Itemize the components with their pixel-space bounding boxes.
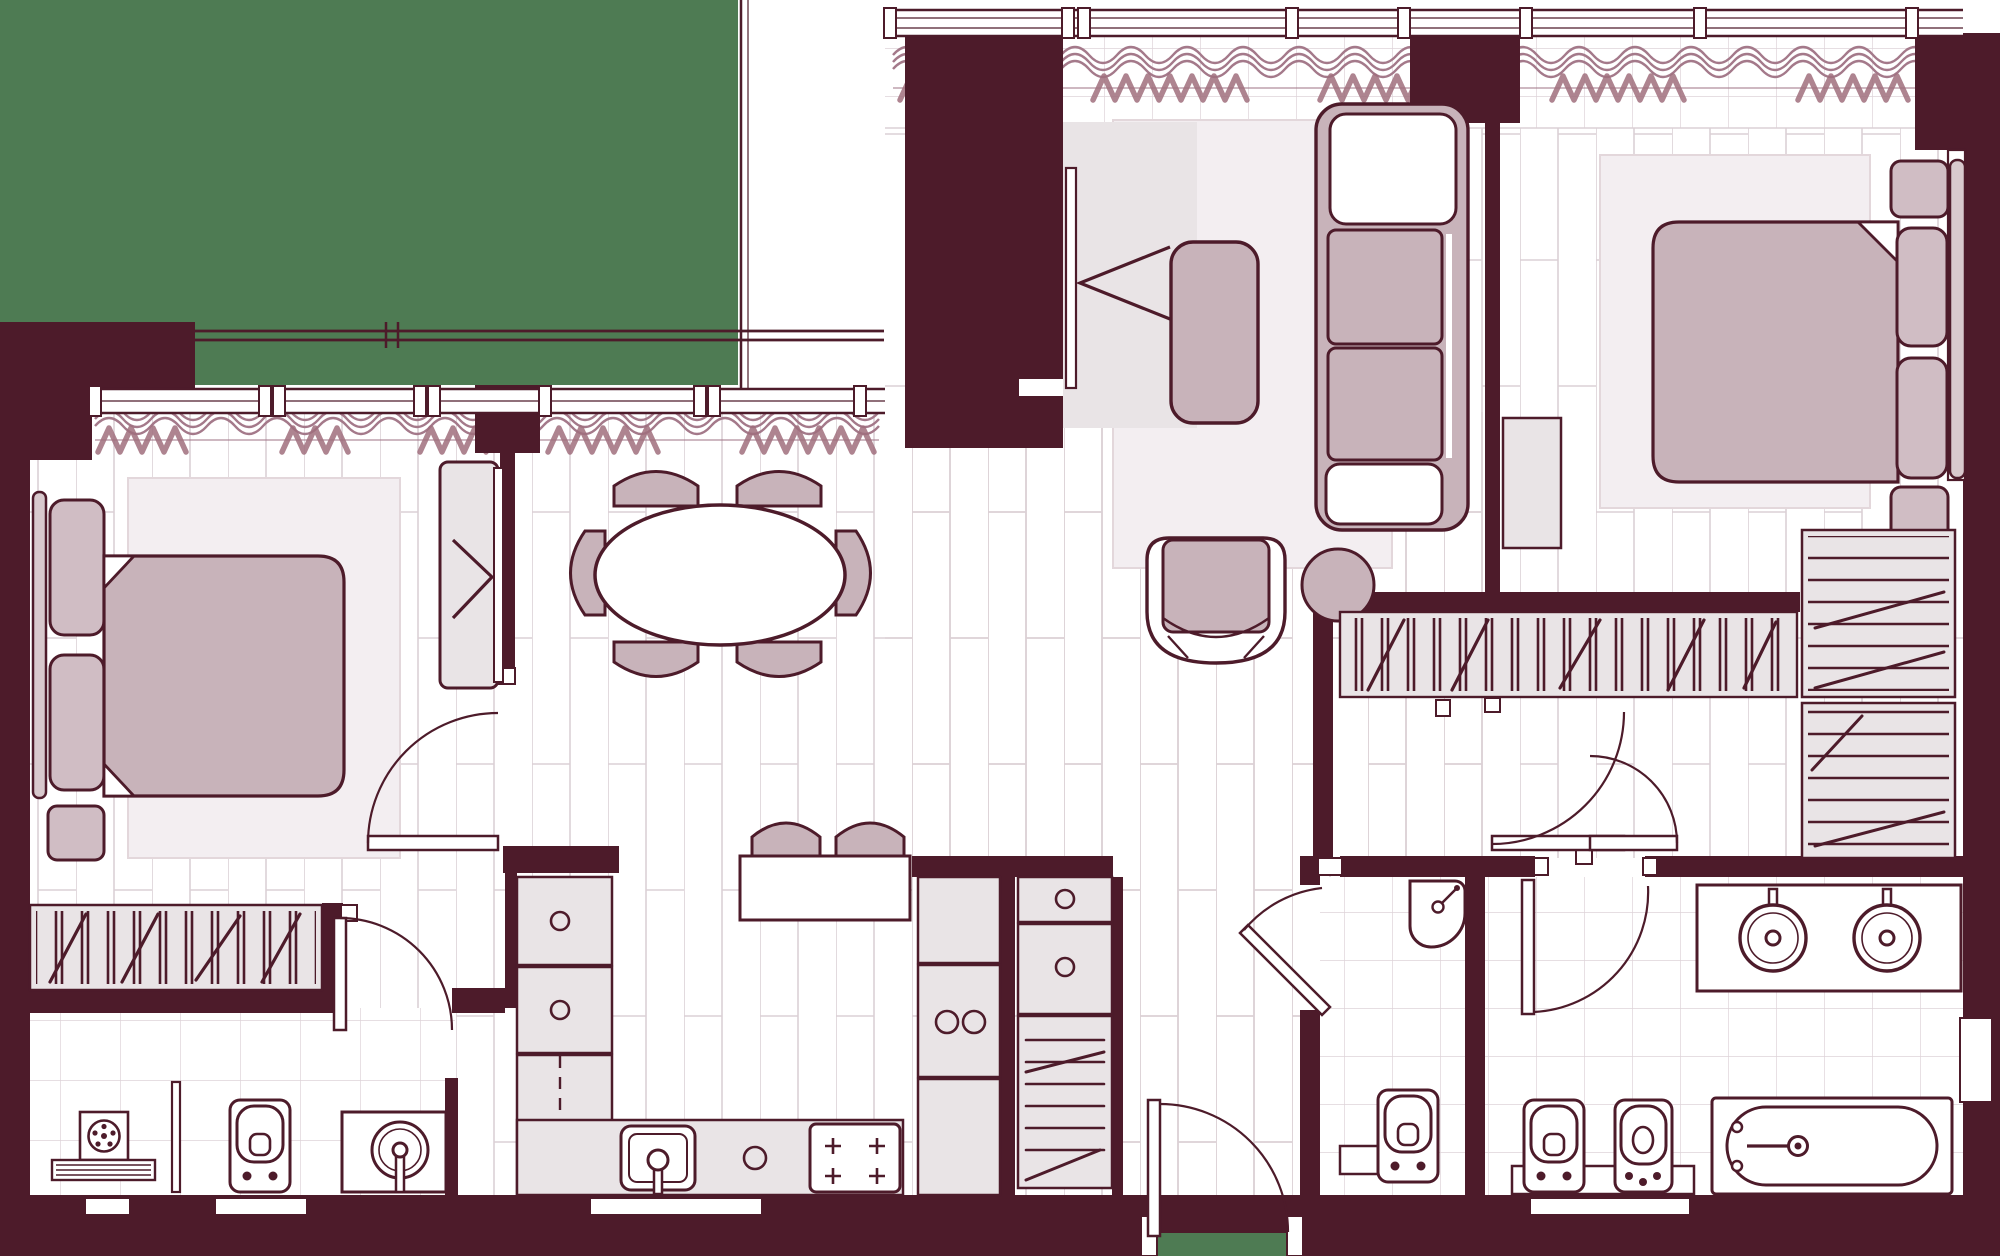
kitchen-island	[740, 856, 910, 920]
toilet-wc	[1378, 1090, 1438, 1182]
headboard	[1950, 160, 1965, 478]
bathtub	[1712, 1098, 1952, 1194]
ottoman	[1302, 549, 1374, 621]
shoe-rack	[1802, 703, 1955, 858]
cabinet	[517, 877, 612, 965]
cabinet	[517, 967, 612, 1053]
armchair	[1147, 538, 1285, 663]
floor-plan	[0, 0, 2000, 1256]
coffee-table	[1171, 242, 1258, 423]
hanging-rail-closet	[1340, 612, 1797, 697]
washing-machine	[80, 1112, 128, 1160]
corner-shower	[1410, 881, 1465, 947]
floor-plan-drawing	[0, 0, 2000, 1256]
toilet-left	[230, 1100, 290, 1192]
dining-table	[595, 505, 845, 645]
fridge-column	[918, 877, 1000, 1195]
entry-shoe-cabinet	[1018, 877, 1112, 1188]
vanity-left	[342, 1112, 446, 1192]
bath-mat	[52, 1160, 155, 1180]
pillow	[1897, 358, 1947, 478]
dresser	[1503, 418, 1561, 548]
kitchen-sink	[621, 1126, 695, 1194]
toilet-master	[1524, 1100, 1584, 1192]
window-band-left-wing	[89, 386, 885, 416]
pillow	[50, 500, 104, 635]
cooktop	[810, 1124, 900, 1192]
sofa	[1316, 104, 1468, 530]
entrance-threshold	[1157, 1233, 1287, 1256]
closet-left-hanging	[30, 905, 322, 990]
nightstand	[48, 806, 104, 860]
pillow	[1897, 228, 1947, 346]
sliding-door-panel	[494, 468, 503, 682]
blanket	[1653, 222, 1898, 482]
bidet	[1615, 1100, 1672, 1192]
blanket	[104, 556, 344, 796]
headboard	[33, 492, 46, 798]
glass-partition	[172, 1082, 180, 1192]
shelf-rack	[1802, 530, 1955, 697]
nightstand	[1891, 161, 1948, 217]
tv-panel	[1066, 168, 1076, 388]
pillow	[50, 655, 104, 790]
wardrobe-bedroom-left	[440, 462, 503, 688]
double-vanity	[1697, 885, 1961, 991]
window-bathroom-master	[1960, 1018, 1992, 1102]
window-band-top	[884, 8, 1963, 38]
